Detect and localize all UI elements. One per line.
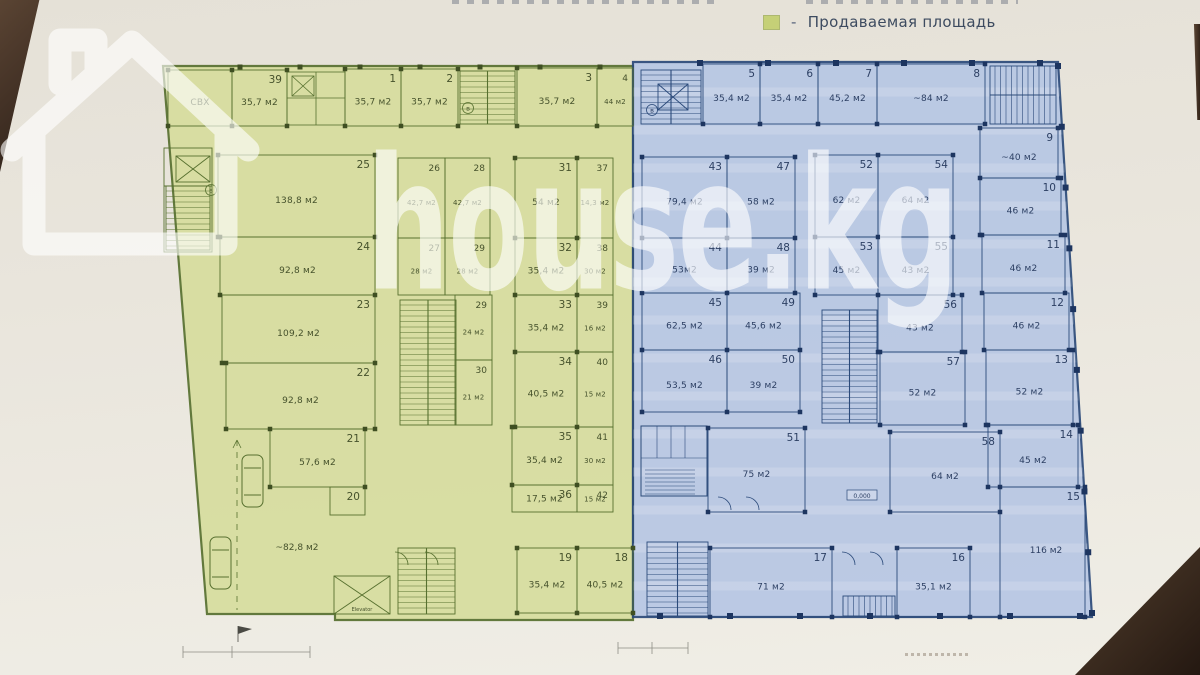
svg-text:52: 52 — [860, 159, 873, 171]
svg-text:2: 2 — [446, 73, 453, 85]
svg-text:92,8 м2: 92,8 м2 — [279, 266, 316, 276]
svg-text:45 м2: 45 м2 — [833, 266, 861, 276]
area-label: ~82,8 м2 — [276, 543, 319, 553]
svg-text:30: 30 — [476, 366, 488, 376]
svg-text:58: 58 — [982, 436, 995, 448]
svg-text:15 м2: 15 м2 — [584, 391, 606, 399]
svg-text:45,6 м2: 45,6 м2 — [745, 322, 782, 332]
svg-text:25: 25 — [357, 159, 370, 171]
svg-text:54 м2: 54 м2 — [532, 198, 560, 208]
svg-text:35,7 м2: 35,7 м2 — [355, 98, 392, 108]
svg-text:92,8 м2: 92,8 м2 — [282, 396, 319, 406]
svg-text:51: 51 — [787, 432, 800, 444]
svg-text:35,1 м2: 35,1 м2 — [915, 583, 952, 593]
svg-text:57,6 м2: 57,6 м2 — [299, 458, 336, 468]
svg-text:13: 13 — [1055, 354, 1068, 366]
svg-text:1: 1 — [389, 73, 396, 85]
svg-text:56: 56 — [944, 299, 958, 311]
svg-text:35,7 м2: 35,7 м2 — [411, 98, 448, 108]
svg-text:42,7 м2: 42,7 м2 — [453, 199, 482, 207]
svg-text:39 м2: 39 м2 — [747, 266, 775, 276]
floor-plan-drawing: СВХ3935,7 м2135,7 м2235,7 м2335,7 м2444 … — [0, 0, 1200, 675]
svg-text:11: 11 — [1047, 239, 1060, 251]
legend: - Продаваемая площадь — [763, 13, 996, 31]
svg-text:44: 44 — [709, 242, 723, 254]
svg-text:16 м2: 16 м2 — [584, 325, 606, 333]
svg-text:~40 м2: ~40 м2 — [1001, 153, 1037, 163]
svg-text:10: 10 — [1043, 182, 1056, 194]
svg-text:35,4 м2: 35,4 м2 — [528, 324, 565, 334]
svg-text:14: 14 — [1060, 429, 1074, 441]
svg-text:20: 20 — [347, 491, 360, 503]
svg-text:35,7 м2: 35,7 м2 — [241, 98, 278, 108]
svg-text:46 м2: 46 м2 — [1013, 322, 1041, 332]
svg-text:49: 49 — [782, 297, 795, 309]
svg-text:39: 39 — [597, 301, 609, 311]
svg-text:~84 м2: ~84 м2 — [913, 94, 949, 104]
svg-text:45: 45 — [709, 297, 722, 309]
svg-text:64 м2: 64 м2 — [902, 196, 930, 206]
svg-text:46 м2: 46 м2 — [1010, 264, 1038, 274]
legend-label: Продаваемая площадь — [808, 13, 996, 31]
svg-text:43 м2: 43 м2 — [906, 324, 934, 334]
svg-text:71 м2: 71 м2 — [757, 583, 785, 593]
svg-text:53,5 м2: 53,5 м2 — [666, 381, 703, 391]
svg-text:30 м2: 30 м2 — [584, 457, 606, 465]
svg-text:34: 34 — [559, 356, 573, 368]
svg-text:35,7 м2: 35,7 м2 — [539, 97, 576, 107]
svg-text:62 м2: 62 м2 — [833, 196, 861, 206]
svg-text:29: 29 — [474, 244, 486, 254]
svg-text:38: 38 — [597, 244, 609, 254]
svg-text:35: 35 — [559, 431, 572, 443]
svg-text:79,4 м2: 79,4 м2 — [666, 198, 703, 208]
svg-text:35,4 м2: 35,4 м2 — [771, 94, 808, 104]
svg-text:12: 12 — [1051, 297, 1064, 309]
floor-plan-photo: СВХ3935,7 м2135,7 м2235,7 м2335,7 м2444 … — [0, 0, 1200, 675]
svg-text:44 м2: 44 м2 — [604, 98, 626, 106]
svg-text:37: 37 — [597, 164, 608, 174]
svg-text:43 м2: 43 м2 — [902, 266, 930, 276]
svg-text:41: 41 — [597, 433, 608, 443]
area-label: 116 м2 — [1030, 546, 1063, 556]
svg-text:47: 47 — [777, 161, 790, 173]
svg-text:35,4 м2: 35,4 м2 — [528, 267, 565, 277]
svg-text:5: 5 — [748, 68, 755, 80]
svg-text:42,7 м2: 42,7 м2 — [407, 199, 436, 207]
svg-text:52 м2: 52 м2 — [1016, 388, 1044, 398]
svg-text:62,5 м2: 62,5 м2 — [666, 322, 703, 332]
svg-text:64 м2: 64 м2 — [931, 472, 959, 482]
svg-text:55: 55 — [935, 241, 948, 253]
svg-text:17: 17 — [814, 552, 827, 564]
drawing-stamp-text — [905, 653, 969, 656]
legend-dash: - — [791, 13, 797, 31]
svg-text:26: 26 — [429, 164, 441, 174]
svg-text:15: 15 — [1067, 491, 1080, 503]
svg-text:9: 9 — [1046, 132, 1053, 144]
svg-text:46: 46 — [709, 354, 723, 366]
svg-text:17,5 м2: 17,5 м2 — [526, 495, 563, 505]
svg-text:138,8 м2: 138,8 м2 — [275, 196, 318, 206]
svg-text:Elevator: Elevator — [352, 607, 374, 613]
legend-swatch — [763, 15, 780, 30]
svg-text:в: в — [466, 105, 470, 113]
level-mark: 0,000 — [847, 490, 877, 500]
svg-text:35,4 м2: 35,4 м2 — [526, 456, 563, 466]
svg-text:32: 32 — [559, 242, 572, 254]
svg-text:21: 21 — [347, 433, 360, 445]
svg-text:54: 54 — [935, 159, 949, 171]
svg-text:14,3 м2: 14,3 м2 — [581, 199, 610, 207]
svg-text:46 м2: 46 м2 — [1007, 207, 1035, 217]
svg-text:45 м2: 45 м2 — [1019, 456, 1047, 466]
svg-text:30 м2: 30 м2 — [584, 268, 606, 276]
svg-text:39 м2: 39 м2 — [750, 381, 778, 391]
svg-text:75 м2: 75 м2 — [743, 470, 771, 480]
svg-text:43: 43 — [709, 161, 722, 173]
svg-text:35,4 м2: 35,4 м2 — [529, 581, 566, 591]
svg-text:8: 8 — [973, 68, 980, 80]
svg-text:58 м2: 58 м2 — [747, 198, 775, 208]
svg-text:40,5 м2: 40,5 м2 — [587, 581, 624, 591]
svg-text:40,5 м2: 40,5 м2 — [528, 390, 565, 400]
svg-text:53: 53 — [860, 241, 873, 253]
svg-text:52 м2: 52 м2 — [909, 389, 937, 399]
svg-text:15 м2: 15 м2 — [584, 496, 606, 504]
svg-text:57: 57 — [947, 356, 960, 368]
svg-text:22: 22 — [357, 367, 370, 379]
svg-text:24: 24 — [357, 241, 371, 253]
dimension-marks — [183, 626, 688, 658]
svg-text:3: 3 — [585, 72, 592, 84]
svg-text:45,2 м2: 45,2 м2 — [829, 94, 866, 104]
svg-text:28: 28 — [474, 164, 486, 174]
svg-text:0,000: 0,000 — [853, 493, 870, 500]
svg-text:21 м2: 21 м2 — [463, 394, 485, 402]
svg-text:50: 50 — [782, 354, 795, 366]
svg-text:35,4 м2: 35,4 м2 — [713, 94, 750, 104]
svg-text:48: 48 — [777, 242, 790, 254]
svg-text:28 м2: 28 м2 — [411, 268, 433, 276]
svg-text:31: 31 — [559, 162, 572, 174]
svg-text:109,2 м2: 109,2 м2 — [277, 329, 320, 339]
svg-text:18: 18 — [615, 552, 628, 564]
svg-text:19: 19 — [559, 552, 572, 564]
svg-text:СВХ: СВХ — [190, 98, 209, 108]
svg-text:6: 6 — [806, 68, 813, 80]
svg-text:27: 27 — [429, 244, 440, 254]
svg-text:28 м2: 28 м2 — [457, 268, 479, 276]
svg-text:29: 29 — [476, 301, 488, 311]
svg-text:16: 16 — [952, 552, 966, 564]
svg-text:23: 23 — [357, 299, 370, 311]
svg-text:4: 4 — [622, 74, 628, 84]
svg-text:39: 39 — [269, 74, 282, 86]
svg-text:40: 40 — [597, 358, 609, 368]
svg-text:7: 7 — [865, 68, 872, 80]
svg-text:33: 33 — [559, 299, 572, 311]
svg-text:24 м2: 24 м2 — [463, 329, 485, 337]
svg-text:53м2: 53м2 — [672, 266, 697, 276]
